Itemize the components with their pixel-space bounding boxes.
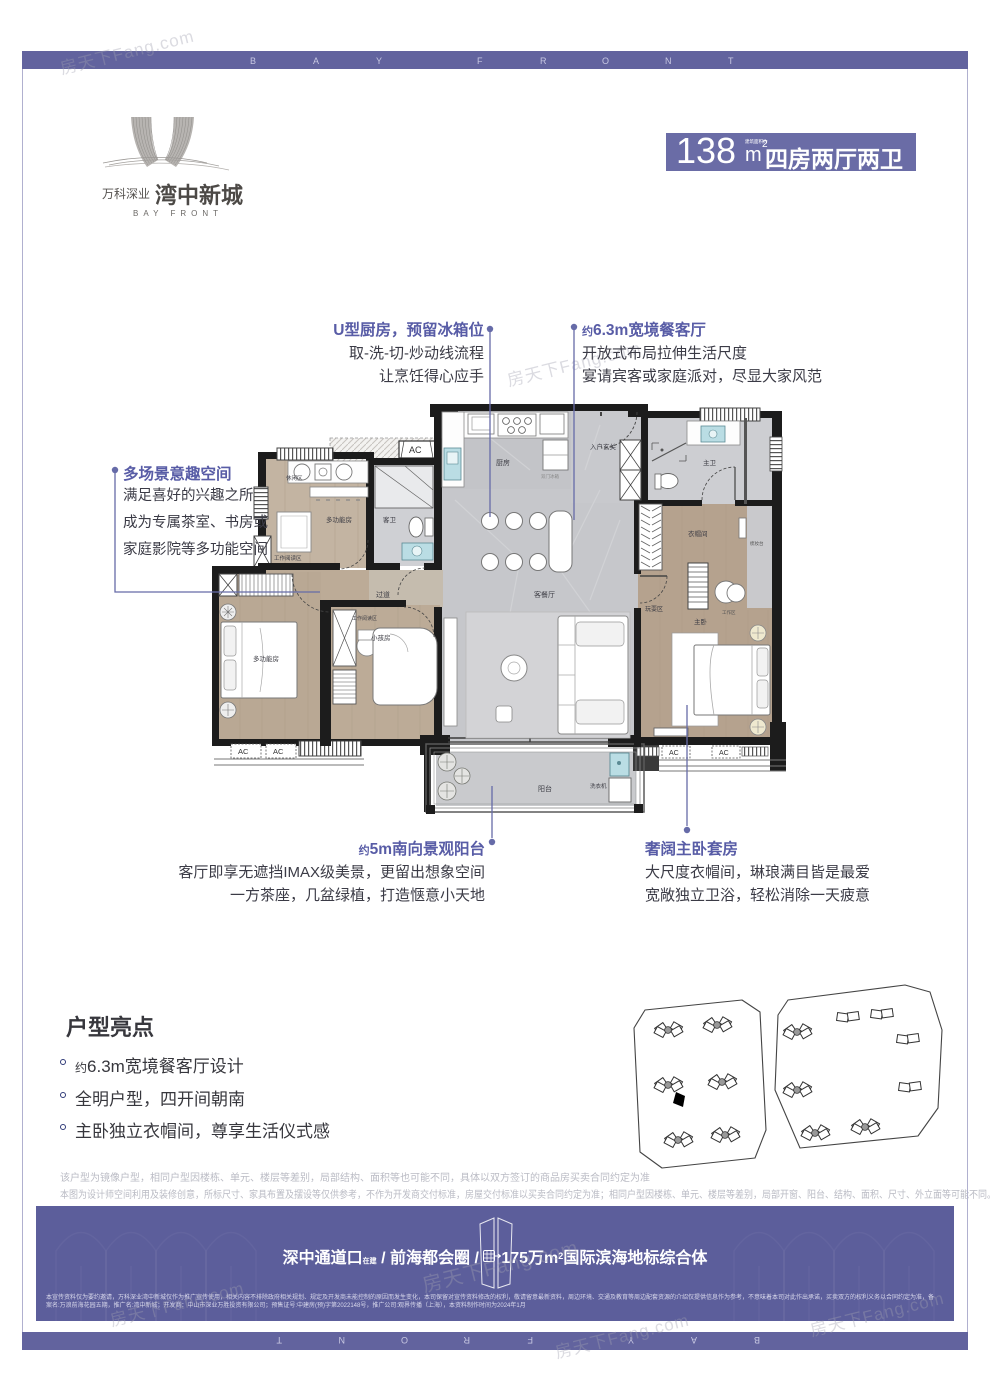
svg-text:AC: AC (719, 750, 729, 757)
svg-text:客餐厅: 客餐厅 (534, 590, 555, 599)
svg-text:工作阅读区: 工作阅读区 (274, 554, 302, 562)
svg-text:AC: AC (238, 747, 249, 756)
svg-text:多功能房: 多功能房 (326, 515, 352, 524)
svg-text:双门冰箱: 双门冰箱 (541, 473, 559, 480)
svg-text:万科深业: 万科深业 (102, 187, 150, 201)
svg-text:洗衣机: 洗衣机 (590, 782, 607, 790)
svg-text:厨房: 厨房 (496, 458, 510, 467)
svg-text:AC: AC (273, 747, 284, 756)
svg-text:BAY FRONT: BAY FRONT (133, 209, 223, 218)
svg-text:AC: AC (669, 750, 679, 757)
svg-text:小孩房: 小孩房 (371, 633, 391, 642)
svg-text:入户玄关: 入户玄关 (590, 442, 617, 451)
svg-text:梳妆台: 梳妆台 (750, 540, 764, 547)
svg-text:主卫: 主卫 (703, 458, 717, 467)
svg-text:玩耍区: 玩耍区 (645, 606, 663, 613)
svg-text:客卫: 客卫 (383, 515, 397, 524)
svg-text:湾中新城: 湾中新城 (155, 183, 243, 208)
svg-text:工作阅读区: 工作阅读区 (352, 615, 377, 622)
svg-text:工作区: 工作区 (722, 609, 736, 616)
svg-text:过道: 过道 (376, 590, 390, 599)
svg-text:衣帽间: 衣帽间 (688, 529, 708, 538)
svg-text:阳台: 阳台 (538, 784, 552, 793)
svg-text:多功能房: 多功能房 (253, 654, 279, 663)
svg-text:AC: AC (409, 445, 422, 455)
svg-text:休闲区: 休闲区 (286, 474, 303, 482)
svg-text:主卧: 主卧 (694, 617, 708, 626)
